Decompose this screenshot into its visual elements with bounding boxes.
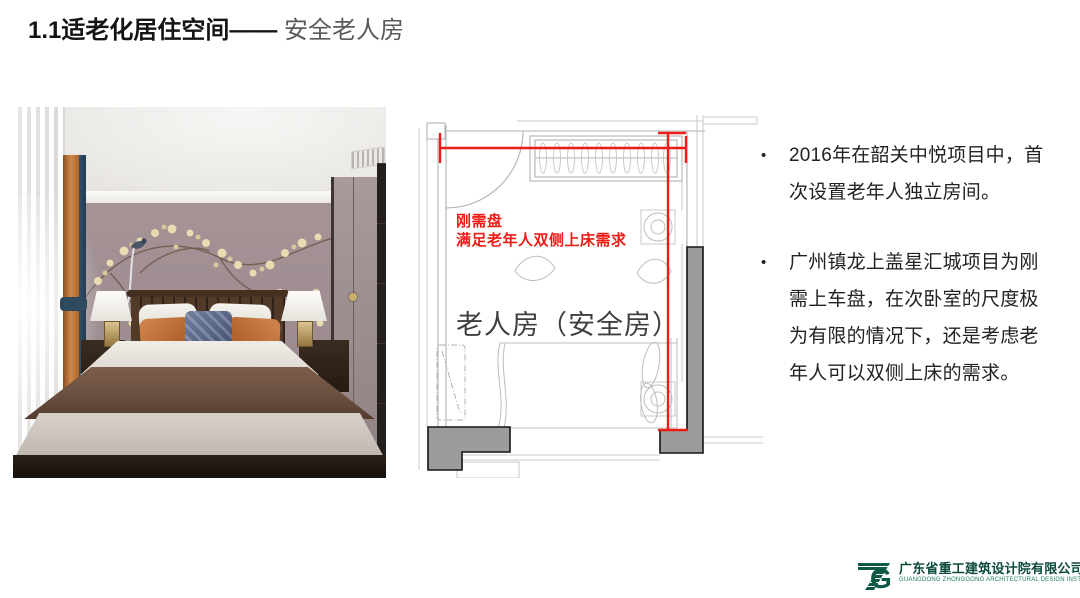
room-label: 老人房（安全房） (456, 310, 680, 341)
bedroom-photo (13, 107, 386, 478)
floor-plan: 刚需盘 满足老年人双侧上床需求 老人房（安全房） (405, 103, 765, 478)
side-cabinet (377, 163, 386, 478)
note-text-1: 2016年在韶关中悦项目中，首次设置老年人独立房间。 (789, 137, 1051, 211)
curtain-tieback (60, 297, 87, 311)
company-name-cn: 广东省重工建筑设计院有限公司 (899, 561, 1080, 576)
plan-note-line2: 满足老年人双侧上床需求 (456, 231, 627, 249)
plan-note-line1: 刚需盘 (456, 212, 503, 230)
page-title-secondary: 安全老人房 (277, 17, 404, 44)
wall-fill (428, 247, 703, 470)
lamp-right-body (297, 321, 313, 347)
lamp-right (281, 291, 327, 321)
company-logo: G 广东省重工建筑设计院有限公司 GUANGDONG ZHONGGONG ARC… (856, 557, 1080, 593)
bullet-dot: • (755, 137, 789, 211)
wardrobe-handle (349, 293, 357, 301)
page-title: 1.1适老化居住空间—— 安全老人房 (28, 16, 404, 46)
note-item-1: • 2016年在韶关中悦项目中，首次设置老年人独立房间。 (755, 137, 1055, 211)
bullet-dot: • (755, 244, 789, 392)
zg-logo-icon: G (856, 557, 896, 593)
company-name-block: 广东省重工建筑设计院有限公司 GUANGDONG ZHONGGONG ARCHI… (899, 557, 1080, 584)
bed-symbol (498, 256, 677, 428)
note-item-2: • 广州镇龙上盖星汇城项目为刚需上车盘，在次卧室的尺度极为有限的情况下，还是考虑… (755, 244, 1055, 392)
bed-base (13, 455, 386, 478)
page-title-primary: 1.1适老化居住空间—— (28, 17, 277, 44)
svg-text:G: G (870, 563, 892, 593)
dashed-fixture (437, 345, 465, 420)
notes-column: • 2016年在韶关中悦项目中，首次设置老年人独立房间。 • 广州镇龙上盖星汇城… (755, 137, 1055, 425)
lamp-left (90, 291, 132, 321)
bed-skirt (13, 413, 386, 461)
note-text-2: 广州镇龙上盖星汇城项目为刚需上车盘，在次卧室的尺度极为有限的情况下，还是考虑老年… (789, 244, 1051, 392)
company-name-en: GUANGDONG ZHONGGONG ARCHITECTURAL DESIGN… (899, 576, 1080, 584)
